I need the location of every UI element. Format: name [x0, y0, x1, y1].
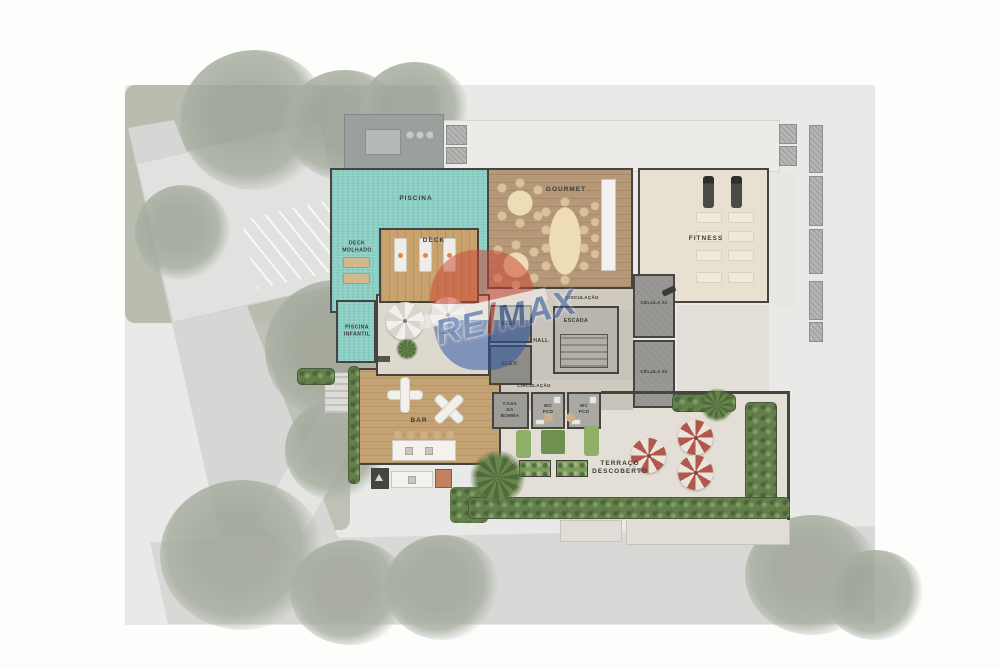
fence-panel	[809, 281, 823, 320]
hatch-panel	[446, 125, 467, 145]
tree	[825, 550, 925, 640]
palm-tree	[470, 450, 525, 505]
room-celula-01	[633, 274, 675, 338]
side-yard	[677, 305, 769, 393]
red-umbrella-icon	[678, 420, 713, 455]
terrace-sofa	[516, 430, 531, 458]
bar-sink	[405, 447, 413, 455]
side-walkway	[768, 172, 796, 307]
bar-stools	[392, 430, 456, 440]
label-deck-molhado: DECK MOLHADO	[342, 241, 372, 254]
exercise-mat	[728, 212, 754, 223]
exercise-mat	[728, 231, 754, 242]
label-wc-pcd-left: WC PCD	[543, 403, 554, 415]
hatch-panel	[446, 147, 467, 164]
service-counter	[391, 471, 433, 488]
label-gourmet: GOURMET	[546, 186, 586, 194]
tree	[135, 185, 230, 280]
roof-deck-seats	[405, 131, 433, 139]
label-celula-02: CÉLULA 02	[640, 369, 667, 375]
pizza-oven	[435, 469, 452, 488]
exercise-mat	[728, 250, 754, 261]
entry-walkway	[432, 120, 780, 172]
terrace-sofa	[584, 426, 599, 456]
terrace-step-block	[560, 520, 622, 542]
wet-deck-lounger	[343, 273, 370, 284]
hedge	[297, 368, 335, 385]
exercise-mat	[696, 272, 722, 283]
terrace-table	[541, 430, 565, 454]
roof-deck-furniture	[365, 129, 401, 155]
fence-panel	[809, 229, 823, 274]
wc-fixture	[553, 396, 561, 404]
hedge	[468, 497, 790, 519]
red-umbrella-icon	[678, 455, 713, 490]
bar-sink	[425, 447, 433, 455]
label-bar: BAR	[410, 417, 427, 425]
wet-deck-lounger	[343, 257, 370, 268]
treadmill-icon	[731, 176, 742, 208]
palm-tree	[700, 388, 734, 422]
hatch-panel	[779, 146, 797, 166]
wc-fixture	[535, 419, 545, 425]
treadmill-icon	[703, 176, 714, 208]
label-piscina: PISCINA	[399, 195, 432, 203]
hedge	[348, 366, 360, 484]
sun-lounger	[394, 238, 407, 272]
patio-bench	[378, 356, 390, 362]
label-celula-01: CÉLULA 01	[640, 300, 667, 306]
exercise-mat	[696, 212, 722, 223]
hedge	[745, 402, 777, 512]
fence-panel	[809, 176, 823, 226]
floor-plan-canvas: PISCINA DECK MOLHADO DECK PISCINA INFANT…	[0, 0, 1000, 667]
remax-watermark: RE/MAX	[408, 238, 618, 388]
tree	[385, 535, 500, 640]
service-sink	[408, 476, 416, 484]
pouf	[566, 413, 575, 422]
fence-panel	[809, 125, 823, 173]
label-wc-pcd-right: WC PCD	[579, 403, 590, 415]
bar-counter	[392, 440, 456, 461]
label-casa-da-bomba: CASA DA BOMBA	[501, 401, 520, 419]
fence-panel	[809, 322, 823, 342]
planter	[556, 460, 588, 477]
label-terraco: TERRAÇO DESCOBERTO	[592, 460, 648, 476]
label-fitness: FITNESS	[689, 235, 723, 243]
label-piscina-infantil: PISCINA INFANTIL	[344, 325, 371, 338]
wc-fixture	[589, 396, 597, 404]
exercise-mat	[728, 272, 754, 283]
hatch-panel	[779, 124, 797, 144]
grill-kiosk	[371, 468, 389, 489]
exercise-mat	[696, 250, 722, 261]
